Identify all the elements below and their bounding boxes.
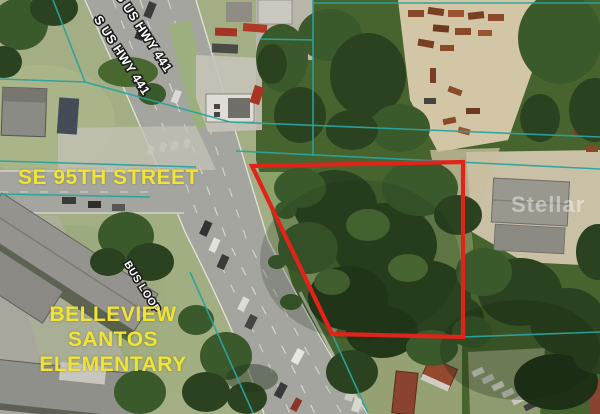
school-name-line1: BELLEVIEW SANTOS bbox=[6, 303, 220, 353]
school-name-line2: ELEMENTARY bbox=[6, 353, 220, 378]
house-top-left bbox=[1, 87, 47, 137]
street-name-label: SE 95TH STREET bbox=[18, 166, 199, 190]
shed bbox=[57, 97, 79, 134]
school-name-label: BELLEVIEW SANTOS ELEMENTARY bbox=[6, 303, 220, 377]
mls-watermark: Stellar bbox=[511, 192, 585, 218]
aerial-map: S US HWY 441 S US HWY 441 BUS LOOP SE 95… bbox=[0, 0, 600, 414]
parcel-boundary-line bbox=[260, 39, 313, 40]
